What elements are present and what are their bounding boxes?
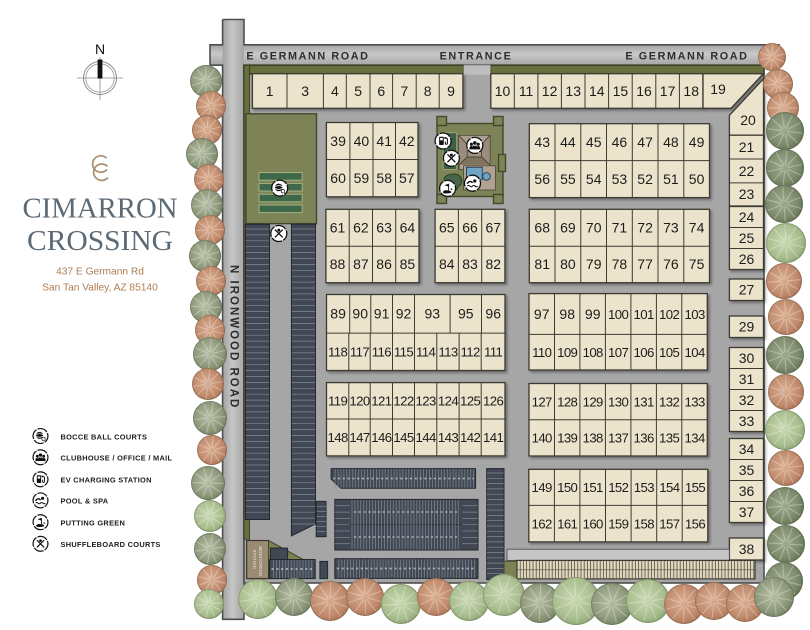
svg-text:125: 125	[460, 394, 480, 409]
svg-text:152: 152	[608, 480, 628, 495]
svg-text:99: 99	[585, 306, 601, 322]
svg-text:59: 59	[354, 170, 370, 186]
svg-text:160: 160	[583, 516, 603, 531]
svg-text:16: 16	[636, 83, 652, 99]
svg-text:137: 137	[608, 431, 628, 446]
svg-text:117: 117	[350, 345, 369, 360]
svg-text:111: 111	[484, 345, 503, 360]
svg-text:19: 19	[710, 81, 726, 97]
svg-text:129: 129	[583, 394, 603, 409]
svg-text:65: 65	[439, 220, 455, 236]
svg-text:61: 61	[330, 220, 346, 236]
svg-text:45: 45	[586, 134, 602, 150]
svg-text:62: 62	[353, 220, 369, 236]
svg-text:87: 87	[353, 256, 369, 272]
svg-text:9: 9	[447, 83, 455, 99]
svg-text:BOCCE BALL COURTS: BOCCE BALL COURTS	[61, 432, 148, 441]
svg-text:80: 80	[560, 256, 576, 272]
svg-text:83: 83	[462, 256, 478, 272]
svg-text:89: 89	[330, 306, 346, 322]
svg-text:1: 1	[266, 83, 274, 99]
svg-text:48: 48	[663, 134, 679, 150]
svg-text:10: 10	[495, 83, 511, 99]
svg-text:146: 146	[371, 430, 391, 445]
svg-text:153: 153	[634, 480, 654, 495]
svg-text:157: 157	[659, 516, 679, 531]
svg-text:ENTRANCE: ENTRANCE	[440, 51, 513, 63]
svg-text:76: 76	[663, 256, 679, 272]
svg-text:49: 49	[689, 134, 705, 150]
svg-text:141: 141	[483, 430, 503, 445]
svg-text:155: 155	[685, 480, 705, 495]
svg-text:EV CHARGING STATION: EV CHARGING STATION	[61, 476, 152, 485]
svg-text:31: 31	[739, 371, 755, 387]
svg-text:161: 161	[557, 516, 577, 531]
svg-text:98: 98	[559, 306, 575, 322]
svg-text:70: 70	[586, 220, 602, 236]
svg-text:33: 33	[739, 413, 755, 429]
svg-text:123: 123	[415, 394, 435, 409]
svg-text:120: 120	[349, 394, 369, 409]
svg-text:115: 115	[394, 345, 413, 360]
svg-text:91: 91	[374, 306, 390, 322]
svg-text:150: 150	[557, 480, 577, 495]
svg-text:54: 54	[586, 171, 602, 187]
svg-text:131: 131	[633, 394, 653, 409]
svg-text:67: 67	[486, 220, 502, 236]
svg-text:119: 119	[328, 394, 347, 409]
svg-text:127: 127	[532, 394, 552, 409]
svg-text:22: 22	[739, 163, 755, 179]
svg-text:75: 75	[689, 256, 705, 272]
svg-text:27: 27	[739, 282, 755, 298]
svg-text:71: 71	[612, 220, 628, 236]
svg-text:106: 106	[633, 345, 653, 360]
svg-text:23: 23	[739, 186, 755, 202]
svg-text:108: 108	[583, 345, 603, 360]
svg-text:103: 103	[684, 307, 704, 322]
svg-text:135: 135	[659, 431, 679, 446]
svg-text:6: 6	[377, 83, 385, 99]
svg-text:43: 43	[534, 134, 550, 150]
svg-text:N: N	[95, 41, 105, 57]
svg-text:133: 133	[684, 394, 704, 409]
svg-text:N IRONWOOD ROAD: N IRONWOOD ROAD	[228, 265, 240, 409]
svg-text:38: 38	[739, 541, 755, 557]
svg-text:56: 56	[534, 171, 550, 187]
svg-text:37: 37	[739, 504, 755, 520]
svg-text:101: 101	[633, 307, 653, 322]
svg-text:STATION: STATION	[252, 550, 257, 570]
svg-text:13: 13	[565, 83, 581, 99]
svg-text:PUTTING GREEN: PUTTING GREEN	[61, 519, 126, 528]
svg-text:63: 63	[376, 220, 392, 236]
svg-text:90: 90	[352, 306, 368, 322]
svg-text:105: 105	[659, 345, 679, 360]
svg-text:86: 86	[376, 256, 392, 272]
svg-text:41: 41	[376, 133, 392, 149]
svg-text:85: 85	[400, 256, 416, 272]
svg-text:112: 112	[460, 345, 479, 360]
svg-text:138: 138	[583, 431, 603, 446]
svg-text:50: 50	[689, 171, 705, 187]
svg-text:29: 29	[739, 319, 755, 335]
svg-text:18: 18	[683, 83, 699, 99]
svg-text:20: 20	[740, 112, 756, 128]
svg-text:128: 128	[557, 394, 577, 409]
svg-text:81: 81	[534, 256, 550, 272]
svg-text:3: 3	[301, 83, 309, 99]
svg-text:130: 130	[608, 394, 628, 409]
svg-text:E GERMANN ROAD: E GERMANN ROAD	[246, 51, 369, 63]
svg-text:142: 142	[460, 430, 480, 445]
svg-text:46: 46	[612, 134, 628, 150]
svg-text:68: 68	[534, 220, 550, 236]
svg-text:53: 53	[612, 171, 628, 187]
svg-text:52: 52	[637, 171, 653, 187]
svg-text:110: 110	[532, 345, 551, 360]
svg-text:73: 73	[663, 220, 679, 236]
svg-text:21: 21	[739, 139, 755, 155]
svg-text:96: 96	[485, 306, 501, 322]
svg-text:109: 109	[557, 345, 577, 360]
svg-text:11: 11	[519, 83, 534, 99]
svg-text:122: 122	[393, 394, 413, 409]
svg-text:145: 145	[393, 430, 413, 445]
svg-text:104: 104	[684, 345, 704, 360]
svg-text:144: 144	[415, 430, 435, 445]
svg-text:66: 66	[462, 220, 478, 236]
svg-text:148: 148	[327, 430, 347, 445]
svg-text:118: 118	[328, 345, 347, 360]
svg-text:69: 69	[560, 220, 576, 236]
svg-text:158: 158	[634, 516, 654, 531]
svg-text:5: 5	[354, 83, 362, 99]
svg-text:44: 44	[560, 134, 576, 150]
svg-text:San Tan Valley, AZ 85140: San Tan Valley, AZ 85140	[42, 283, 158, 294]
svg-text:47: 47	[637, 134, 653, 150]
svg-text:78: 78	[612, 256, 628, 272]
svg-text:79: 79	[586, 256, 602, 272]
svg-text:SHUFFLEBOARD COURTS: SHUFFLEBOARD COURTS	[61, 540, 161, 549]
svg-text:7: 7	[401, 83, 409, 99]
svg-text:84: 84	[439, 256, 455, 272]
svg-text:51: 51	[663, 171, 679, 187]
svg-text:437 E Germann Rd: 437 E Germann Rd	[56, 267, 144, 278]
svg-text:143: 143	[438, 430, 458, 445]
svg-text:88: 88	[330, 256, 346, 272]
svg-text:132: 132	[659, 394, 679, 409]
svg-text:CIMARRON: CIMARRON	[23, 193, 178, 225]
svg-text:72: 72	[637, 220, 653, 236]
svg-text:34: 34	[739, 441, 755, 457]
svg-text:E GERMANN ROAD: E GERMANN ROAD	[625, 51, 748, 63]
svg-text:113: 113	[438, 345, 457, 360]
svg-text:24: 24	[739, 209, 755, 225]
svg-text:151: 151	[583, 480, 603, 495]
svg-text:14: 14	[589, 83, 605, 99]
svg-text:39: 39	[330, 133, 346, 149]
svg-text:126: 126	[483, 394, 503, 409]
svg-text:162: 162	[531, 516, 551, 531]
svg-text:147: 147	[349, 430, 369, 445]
svg-text:36: 36	[739, 483, 755, 499]
svg-text:156: 156	[685, 516, 705, 531]
svg-text:17: 17	[660, 83, 676, 99]
svg-text:116: 116	[372, 345, 391, 360]
svg-text:102: 102	[659, 307, 679, 322]
svg-text:77: 77	[637, 256, 653, 272]
svg-text:74: 74	[689, 220, 705, 236]
svg-text:82: 82	[486, 256, 502, 272]
svg-text:MONITORING: MONITORING	[258, 547, 263, 577]
svg-text:93: 93	[425, 306, 441, 322]
svg-text:8: 8	[424, 83, 432, 99]
svg-text:97: 97	[534, 306, 550, 322]
svg-text:114: 114	[416, 345, 435, 360]
svg-text:POOL & SPA: POOL & SPA	[61, 497, 109, 506]
svg-text:149: 149	[531, 480, 551, 495]
svg-text:4: 4	[331, 83, 339, 99]
svg-text:35: 35	[739, 462, 755, 478]
svg-text:12: 12	[542, 83, 558, 99]
svg-text:134: 134	[684, 431, 704, 446]
svg-text:30: 30	[739, 350, 755, 366]
svg-text:92: 92	[396, 306, 412, 322]
svg-text:CROSSING: CROSSING	[27, 225, 173, 257]
svg-text:58: 58	[376, 170, 392, 186]
svg-text:139: 139	[557, 431, 577, 446]
svg-text:95: 95	[458, 306, 474, 322]
svg-text:25: 25	[739, 230, 755, 246]
svg-text:60: 60	[330, 170, 346, 186]
svg-text:40: 40	[354, 133, 370, 149]
svg-text:107: 107	[608, 345, 628, 360]
svg-text:140: 140	[532, 431, 552, 446]
svg-text:64: 64	[400, 220, 416, 236]
svg-text:136: 136	[633, 431, 653, 446]
svg-text:55: 55	[560, 171, 576, 187]
svg-text:121: 121	[371, 394, 391, 409]
svg-text:57: 57	[399, 170, 415, 186]
svg-text:CLUBHOUSE / OFFICE / MAIL: CLUBHOUSE / OFFICE / MAIL	[61, 454, 173, 463]
svg-text:42: 42	[399, 133, 415, 149]
svg-text:100: 100	[608, 307, 628, 322]
svg-text:15: 15	[613, 83, 629, 99]
svg-text:26: 26	[739, 251, 755, 267]
svg-text:154: 154	[659, 480, 679, 495]
svg-text:32: 32	[739, 392, 755, 408]
svg-text:159: 159	[608, 516, 628, 531]
svg-text:124: 124	[438, 394, 458, 409]
